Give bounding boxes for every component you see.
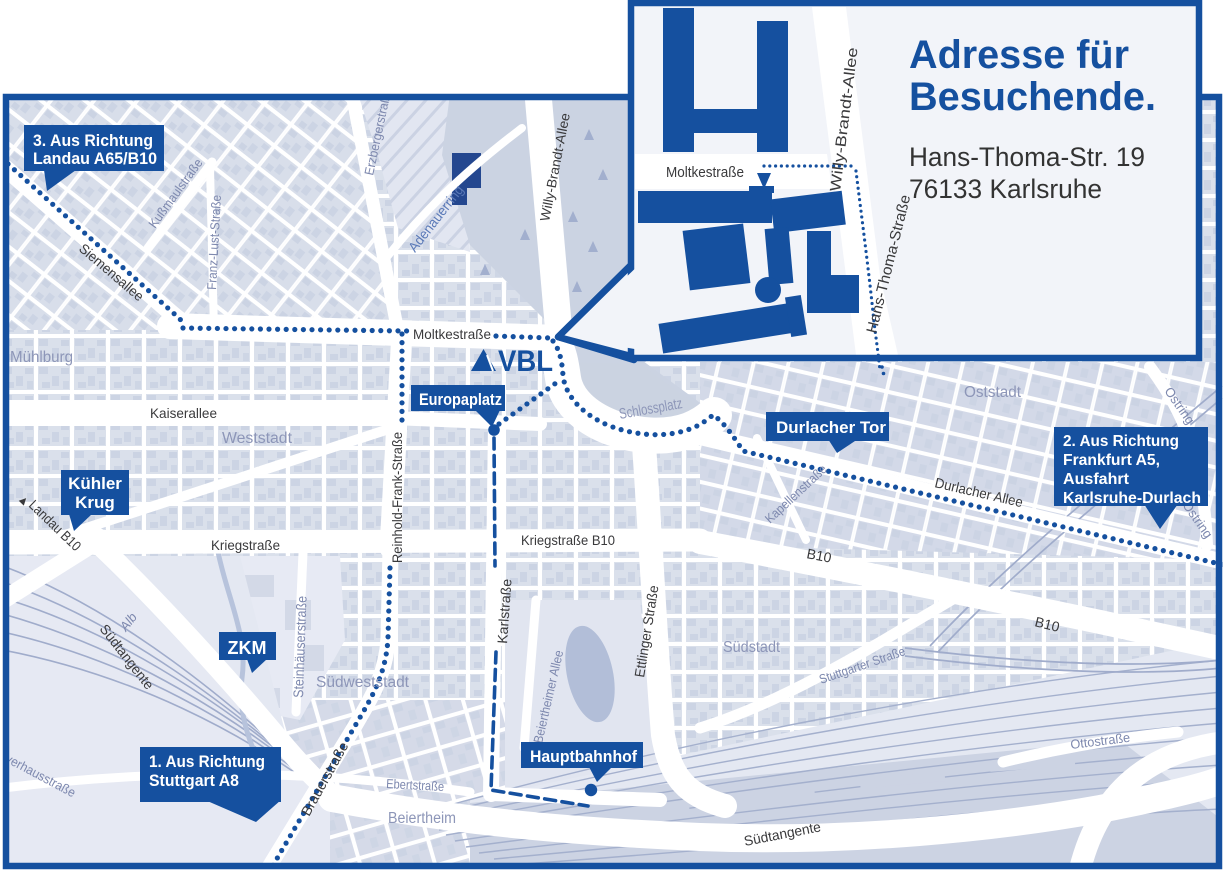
svg-text:Landau A65/B10: Landau A65/B10	[33, 149, 157, 168]
svg-text:Südstadt: Südstadt	[723, 639, 781, 656]
svg-text:Krug: Krug	[75, 493, 115, 512]
svg-text:Kriegstraße: Kriegstraße	[211, 537, 280, 553]
svg-text:Karlsruhe-Durlach: Karlsruhe-Durlach	[1063, 490, 1201, 507]
svg-text:1. Aus Richtung: 1. Aus Richtung	[149, 752, 265, 771]
svg-text:Moltkestraße: Moltkestraße	[666, 165, 744, 181]
svg-text:Hauptbahnhof: Hauptbahnhof	[530, 747, 637, 766]
svg-text:VBL: VBL	[498, 345, 553, 378]
svg-text:Ebertstraße: Ebertstraße	[386, 776, 445, 794]
svg-text:Adresse für: Adresse für	[909, 33, 1129, 77]
svg-text:76133 Karlsruhe: 76133 Karlsruhe	[909, 174, 1102, 204]
svg-text:Oststadt: Oststadt	[964, 384, 1022, 401]
svg-text:Europaplatz: Europaplatz	[419, 390, 502, 409]
svg-text:Kriegstraße B10: Kriegstraße B10	[521, 532, 615, 548]
svg-text:Besuchende.: Besuchende.	[909, 75, 1156, 119]
svg-text:Frankfurt A5,: Frankfurt A5,	[1063, 452, 1160, 469]
svg-text:2. Aus Richtung: 2. Aus Richtung	[1063, 433, 1179, 450]
svg-text:Kühler: Kühler	[68, 474, 122, 493]
svg-text:Hans-Thoma-Str. 19: Hans-Thoma-Str. 19	[909, 142, 1145, 172]
svg-text:ZKM: ZKM	[228, 638, 267, 658]
svg-text:Kaiserallee: Kaiserallee	[150, 405, 217, 421]
svg-text:3. Aus Richtung: 3. Aus Richtung	[33, 131, 153, 150]
svg-text:Südweststadt: Südweststadt	[316, 674, 410, 691]
svg-text:Ausfahrt: Ausfahrt	[1063, 471, 1130, 488]
svg-text:Moltkestraße: Moltkestraße	[413, 326, 491, 342]
svg-text:Reinhold-Frank-Straße: Reinhold-Frank-Straße	[389, 432, 405, 563]
svg-text:Durlacher Tor: Durlacher Tor	[776, 418, 886, 437]
svg-text:Weststadt: Weststadt	[222, 430, 293, 447]
svg-text:Stuttgart A8: Stuttgart A8	[149, 771, 239, 790]
svg-text:Mühlburg: Mühlburg	[10, 349, 73, 366]
svg-text:Beiertheim: Beiertheim	[388, 810, 456, 827]
